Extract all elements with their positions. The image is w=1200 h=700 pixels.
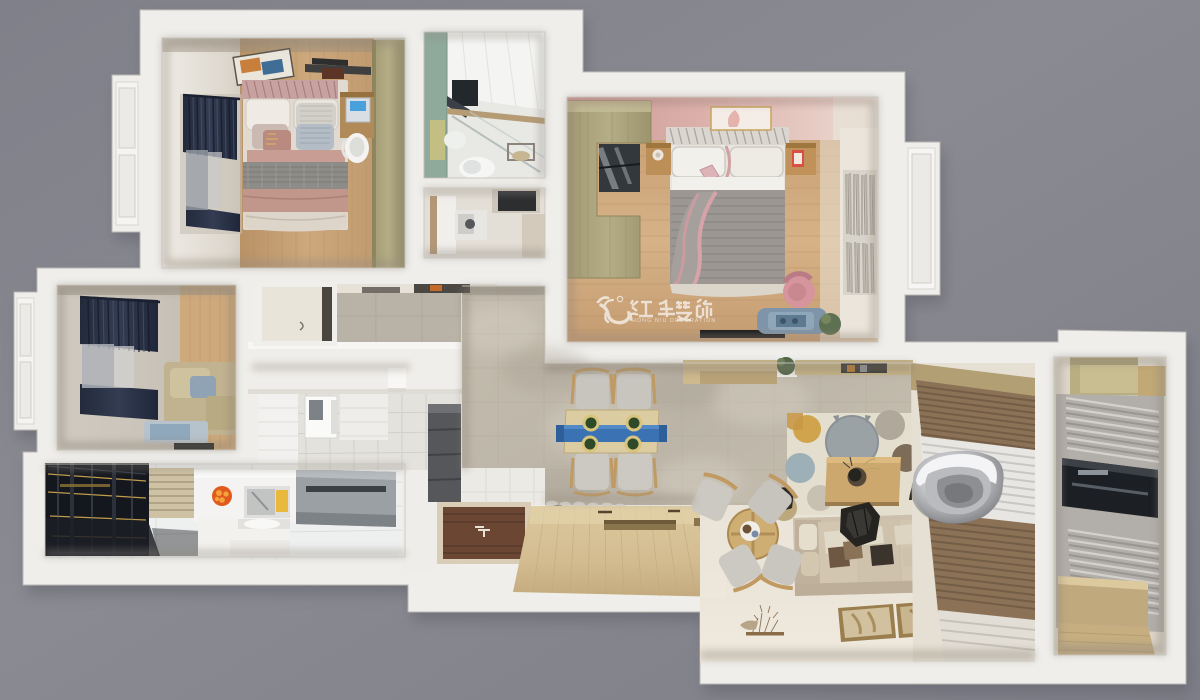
svg-text:HONG NIU DECORATION: HONG NIU DECORATION [632, 318, 716, 324]
